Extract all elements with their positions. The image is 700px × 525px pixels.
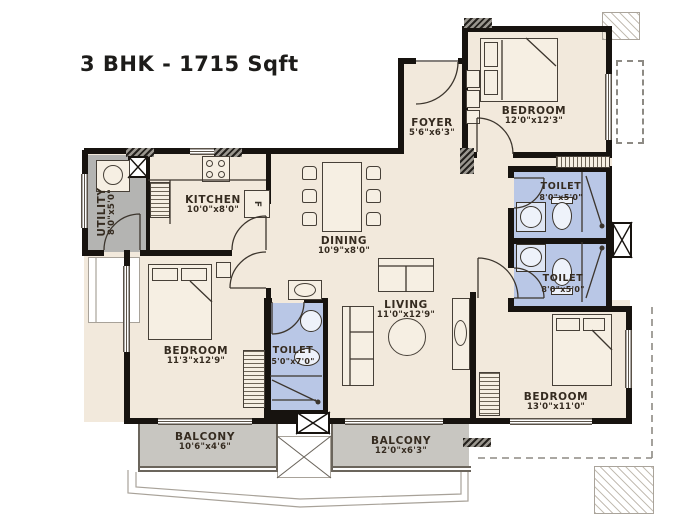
tv-console-knob	[454, 320, 467, 346]
railing	[276, 424, 278, 470]
wall-segment	[82, 228, 88, 256]
shaft-balcony	[296, 412, 330, 434]
railing	[331, 424, 333, 470]
wall-segment	[508, 166, 514, 178]
dining-table	[322, 162, 362, 232]
room-label-bedroom-top-right: BEDROOM 12'0"x12'3"	[502, 105, 566, 127]
wall-segment	[443, 418, 510, 424]
column-hatch	[464, 18, 492, 28]
room-label-balcony-left: BALCONY 10'6"x4'6"	[175, 431, 235, 453]
sofa-side	[342, 306, 374, 386]
wall-segment	[470, 292, 476, 424]
foyer-floor	[402, 62, 468, 156]
pillow	[152, 268, 178, 281]
window	[81, 174, 88, 228]
sofa	[378, 258, 434, 292]
kitchen-sink	[150, 182, 170, 218]
wardrobe	[243, 350, 265, 408]
pillow	[484, 70, 498, 95]
nightstand	[216, 262, 231, 278]
washbasin-outside	[294, 283, 316, 297]
room-label-toilet-inner: TOILET 5'0"x7'0"	[271, 346, 314, 366]
railing	[331, 470, 471, 472]
dining-chair	[366, 212, 381, 226]
wc	[552, 202, 572, 230]
railing	[138, 424, 140, 470]
window	[510, 418, 592, 425]
threshold-hatch	[460, 148, 474, 174]
wardrobe-box	[466, 70, 480, 88]
sliding-door	[345, 418, 443, 425]
wardrobe	[556, 156, 610, 168]
wardrobe-box	[466, 110, 480, 124]
shaft-toilets	[612, 222, 632, 258]
wall-segment	[398, 58, 404, 154]
dining-chair	[302, 189, 317, 203]
washbasin	[520, 206, 542, 228]
plan-title: 3 BHK - 1715 Sqft	[80, 52, 299, 76]
wall-segment	[82, 150, 88, 174]
dining-chair	[302, 212, 317, 226]
wall-segment	[606, 26, 612, 74]
washing-machine-drum	[103, 165, 123, 185]
room-label-balcony-right: BALCONY 12'0"x6'3"	[371, 435, 431, 457]
wall-segment	[462, 26, 468, 152]
railing	[138, 470, 278, 472]
room-label-kitchen: KITCHEN 10'0"x8'0"	[185, 194, 241, 216]
shaft-utility	[128, 156, 148, 178]
washbasin	[300, 310, 322, 332]
wardrobe-box	[466, 90, 480, 108]
wall-segment	[124, 250, 130, 266]
wall-segment	[626, 388, 632, 424]
stove-burner	[218, 160, 225, 167]
sliding-door	[158, 418, 252, 425]
room-label-bedroom-bottom-right: BEDROOM 13'0"x11'0"	[524, 391, 588, 413]
window	[605, 74, 612, 140]
room-label-living: LIVING 11'0"x12'9"	[377, 299, 435, 321]
stove-burner	[218, 171, 225, 178]
stove-burner	[206, 160, 213, 167]
wall-segment	[626, 306, 632, 330]
projection-dashed-top-right	[616, 60, 644, 144]
room-label-bedroom-bottom-left: BEDROOM 11'3"x12'9"	[164, 345, 228, 367]
window	[625, 330, 632, 388]
fridge: F	[244, 190, 270, 218]
deck-bottom-right	[594, 466, 654, 514]
pillow	[556, 318, 580, 331]
room-label-toilet-top-right: TOILET 8'0"x5'0"	[539, 182, 582, 202]
window	[123, 266, 130, 352]
wall-segment	[323, 298, 328, 414]
duct-balcony	[277, 436, 331, 478]
room-label-toilet-mid-right: TOILET 8'0"x5'0"	[541, 274, 584, 294]
pillow	[181, 268, 207, 281]
coffee-table	[388, 318, 426, 356]
floor-plan: 3 BHK - 1715 Sqft	[0, 0, 700, 525]
room-label-foyer: FOYER 5'6"x6'3"	[409, 117, 455, 139]
dining-chair	[366, 189, 381, 203]
wall-segment	[508, 208, 514, 268]
dining-chair	[302, 166, 317, 180]
column-hatch	[463, 438, 491, 447]
room-label-dining: DINING 10'9"x8'0"	[318, 235, 370, 257]
dresser	[479, 372, 500, 416]
wall-segment	[508, 306, 612, 312]
pillow	[484, 42, 498, 67]
washbasin	[520, 247, 542, 267]
railing	[331, 466, 471, 468]
wall-segment	[140, 250, 232, 256]
stove-burner	[206, 171, 213, 178]
pillow	[583, 318, 605, 331]
utility-deck	[88, 257, 140, 323]
dining-chair	[366, 166, 381, 180]
wall-segment	[508, 298, 514, 312]
room-label-utility: UTILITY 8'0"x5'0"	[96, 187, 118, 236]
railing	[138, 466, 278, 468]
wall-segment	[124, 352, 130, 424]
